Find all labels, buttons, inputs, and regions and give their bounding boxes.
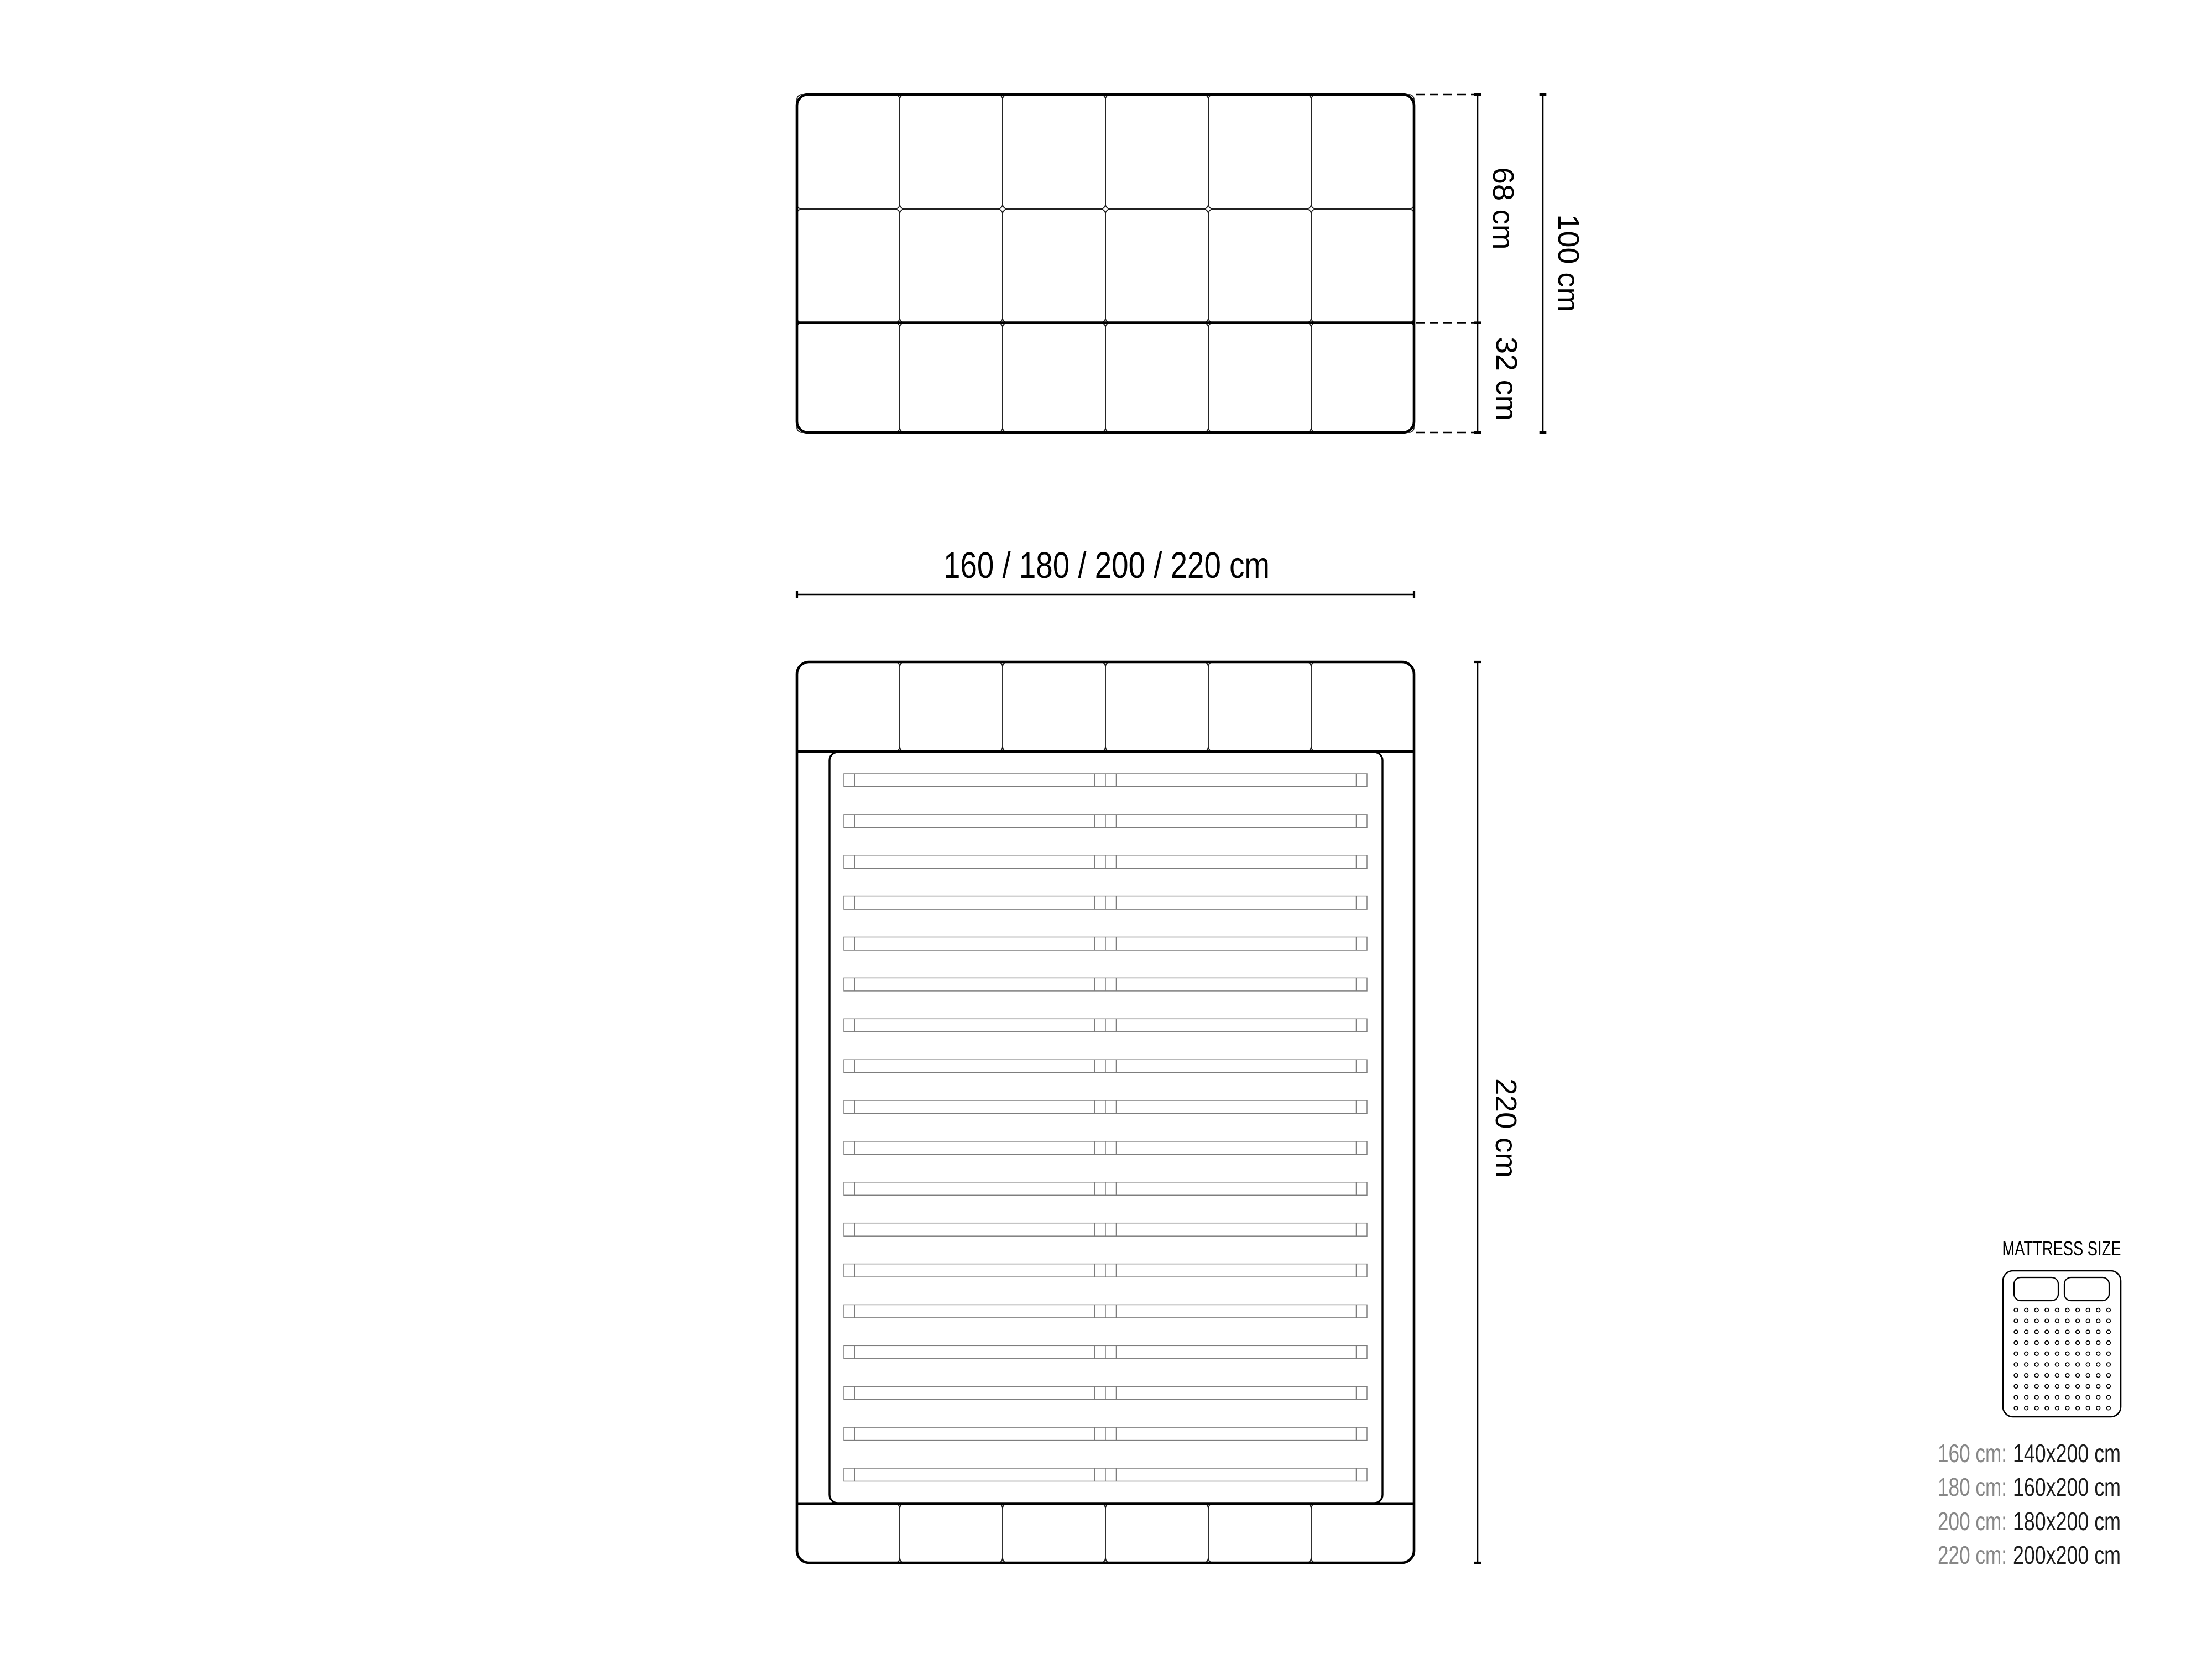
svg-text:180x200 cm: 180x200 cm xyxy=(2013,1507,2121,1536)
svg-text:180 cm:: 180 cm: xyxy=(1938,1473,2007,1501)
svg-text:200 cm:: 200 cm: xyxy=(1938,1507,2007,1536)
svg-text:160 cm:: 160 cm: xyxy=(1938,1439,2007,1468)
svg-text:140x200 cm: 140x200 cm xyxy=(2013,1439,2121,1468)
svg-text:160 / 180 / 200 / 220 cm: 160 / 180 / 200 / 220 cm xyxy=(943,545,1270,586)
svg-text:220 cm: 220 cm xyxy=(1489,1078,1522,1178)
svg-text:MATTRESS SIZE: MATTRESS SIZE xyxy=(2002,1237,2121,1260)
svg-text:100 cm: 100 cm xyxy=(1552,215,1585,312)
svg-text:220 cm:: 220 cm: xyxy=(1938,1541,2007,1569)
svg-text:68 cm: 68 cm xyxy=(1486,168,1520,250)
svg-text:200x200 cm: 200x200 cm xyxy=(2013,1541,2121,1569)
svg-text:160x200 cm: 160x200 cm xyxy=(2013,1473,2121,1501)
svg-text:32 cm: 32 cm xyxy=(1490,337,1523,421)
